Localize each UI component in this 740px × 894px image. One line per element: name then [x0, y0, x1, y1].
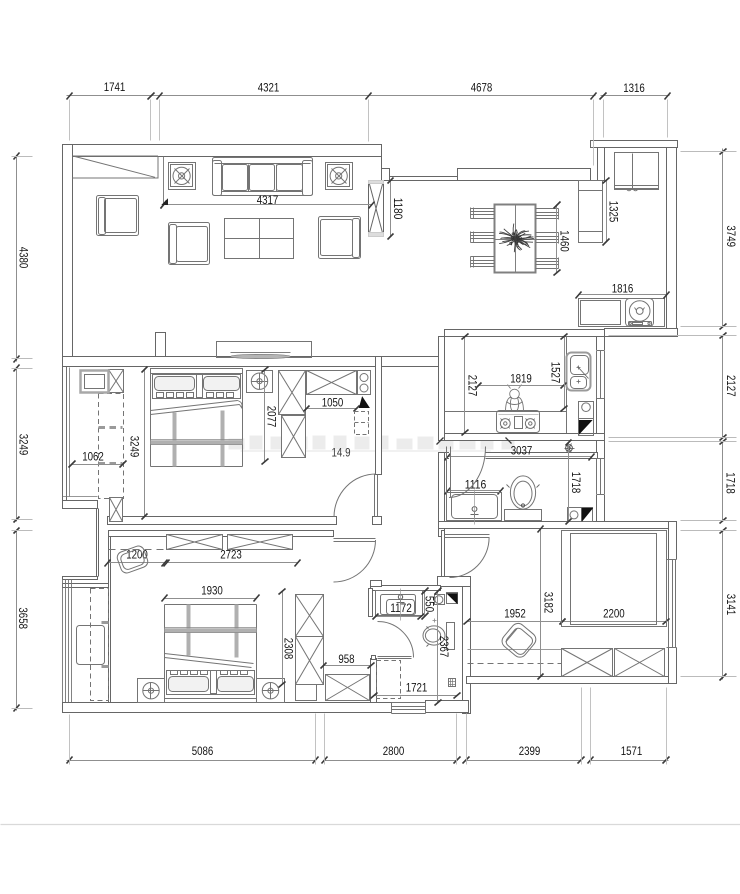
svg-text:1819: 1819: [510, 371, 532, 385]
svg-text:14.9: 14.9: [332, 448, 351, 460]
svg-text:1718: 1718: [569, 472, 583, 494]
svg-text:1062: 1062: [82, 449, 104, 463]
svg-text:1721: 1721: [406, 680, 428, 694]
svg-text:3249: 3249: [17, 434, 31, 456]
svg-text:3658: 3658: [16, 607, 30, 629]
svg-text:1050: 1050: [322, 395, 344, 409]
svg-text:1325: 1325: [607, 201, 621, 223]
svg-text:1571: 1571: [621, 744, 643, 758]
svg-text:2723: 2723: [220, 547, 242, 561]
svg-text:3182: 3182: [542, 592, 556, 614]
svg-text:3249: 3249: [128, 436, 142, 458]
svg-text:2800: 2800: [383, 744, 405, 758]
svg-text:2399: 2399: [519, 744, 541, 758]
svg-text:1816: 1816: [612, 281, 634, 295]
svg-text:1930: 1930: [201, 583, 223, 597]
svg-text:1180: 1180: [391, 198, 405, 220]
svg-text:1460: 1460: [558, 230, 572, 252]
svg-text:1172: 1172: [390, 601, 412, 615]
svg-text:3141: 3141: [724, 594, 738, 616]
svg-text:1116: 1116: [465, 477, 487, 491]
svg-text:2200: 2200: [603, 606, 625, 620]
svg-text:2127: 2127: [724, 375, 738, 397]
svg-text:3037: 3037: [511, 443, 533, 457]
svg-text:1741: 1741: [104, 80, 126, 94]
svg-text:1718: 1718: [724, 472, 738, 494]
svg-text:4317: 4317: [257, 193, 279, 207]
svg-text:2367: 2367: [437, 636, 451, 658]
svg-text:1316: 1316: [623, 81, 645, 95]
svg-text:1952: 1952: [504, 606, 526, 620]
svg-text:2077: 2077: [265, 406, 279, 428]
svg-text:3749: 3749: [724, 225, 738, 247]
svg-text:4380: 4380: [17, 247, 31, 269]
svg-text:4678: 4678: [471, 80, 493, 94]
svg-text:958: 958: [338, 652, 354, 666]
svg-text:5086: 5086: [192, 744, 214, 758]
svg-text:2308: 2308: [282, 638, 296, 660]
svg-text:1527: 1527: [549, 362, 563, 384]
svg-text:4321: 4321: [258, 80, 280, 94]
